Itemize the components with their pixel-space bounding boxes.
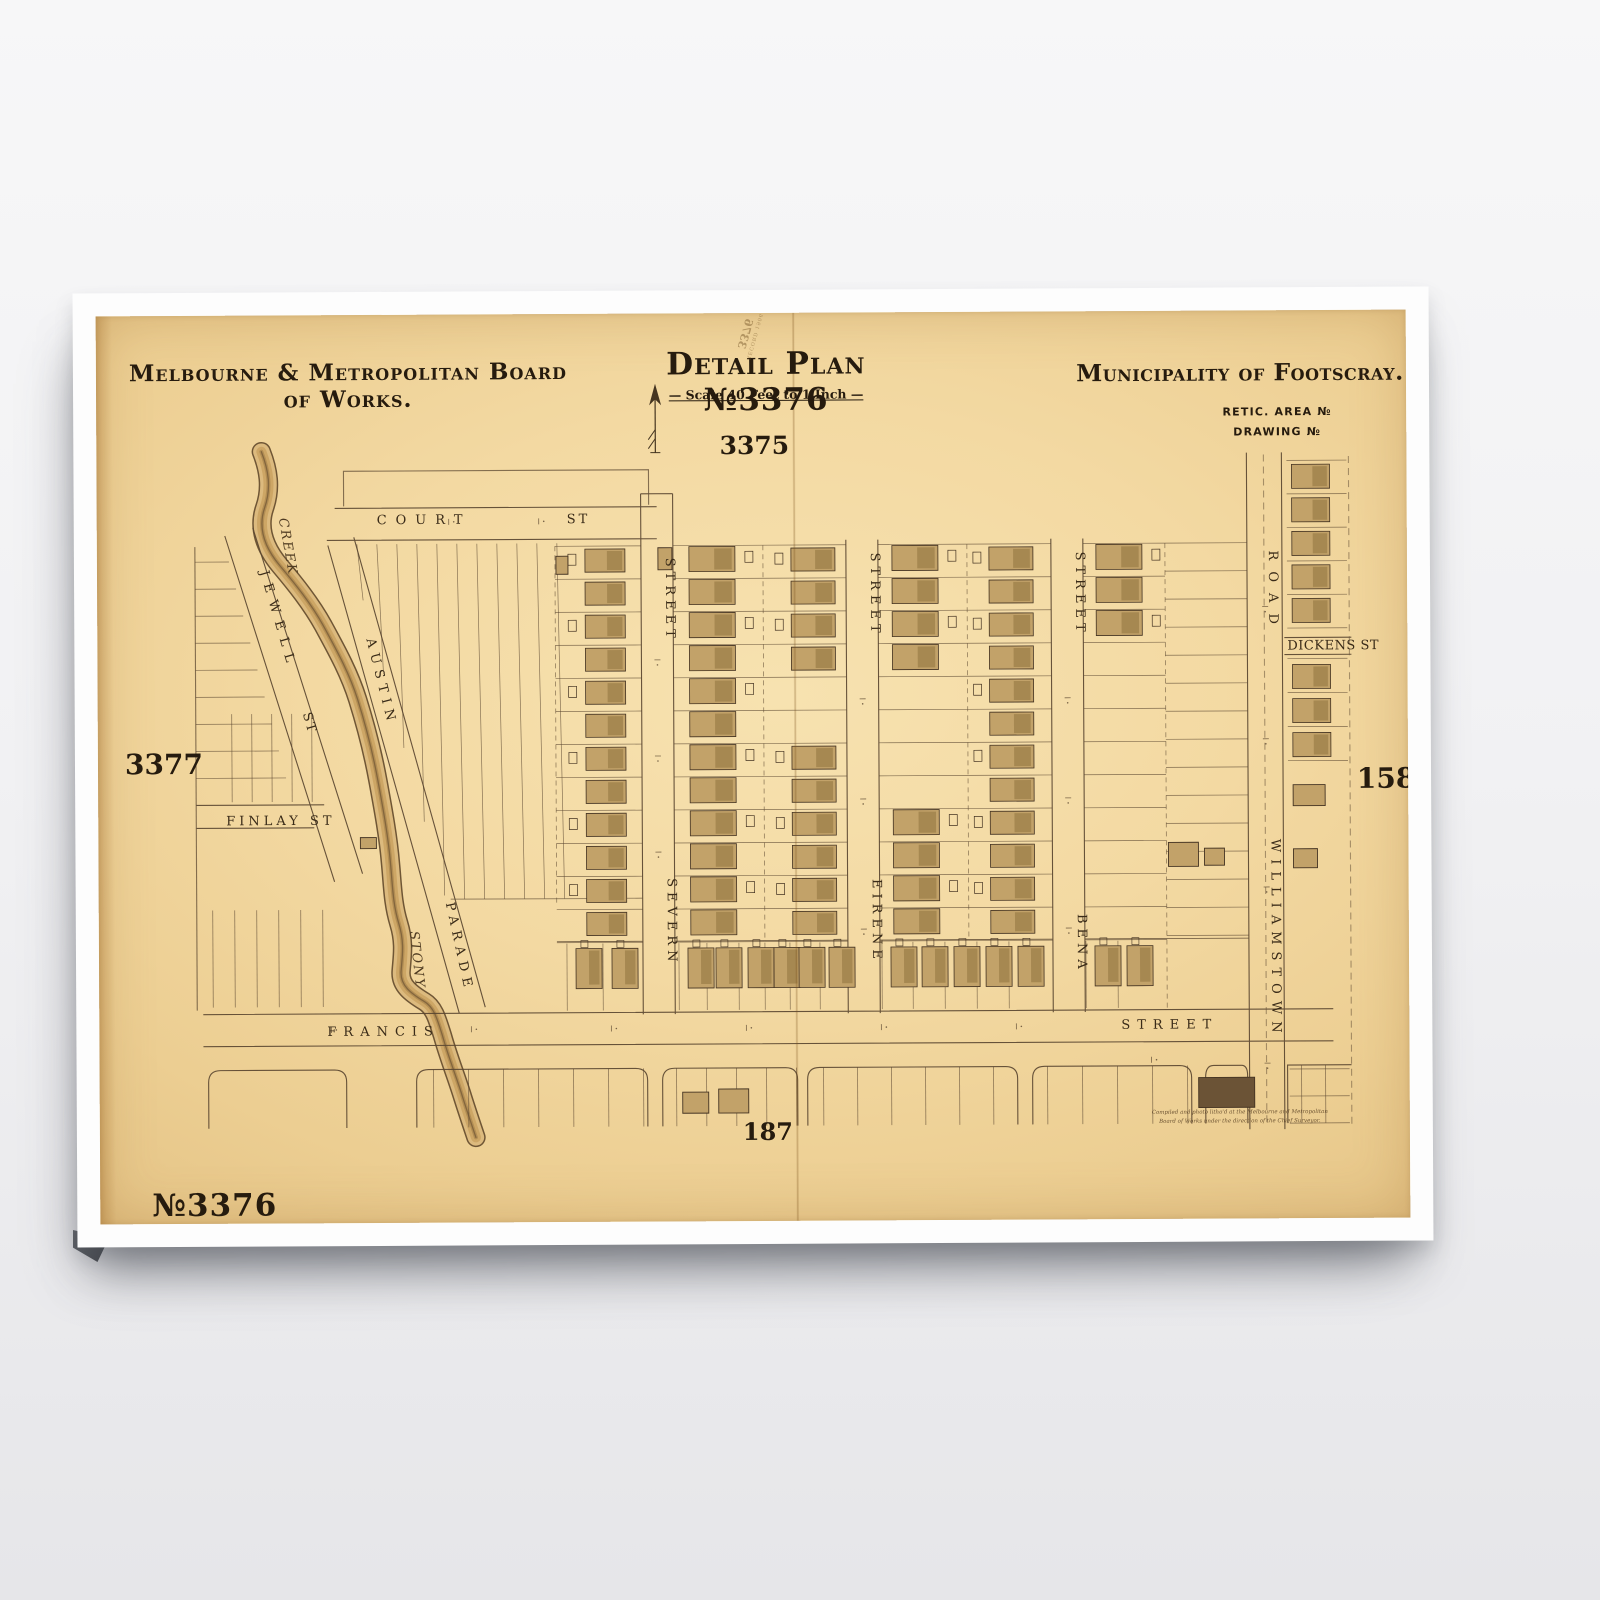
street-label-eirene-street: STREET — [867, 553, 882, 638]
adjoining-plate-left: 3377 — [116, 748, 212, 782]
imprint-note: Compiled and photo litho'd at the Melbou… — [1120, 1108, 1360, 1128]
adjoining-plate-right: 158 — [1336, 761, 1410, 795]
plan-title: Detail Plan №3376 — [611, 345, 921, 419]
street-label-jewell-st: ST — [299, 711, 319, 736]
adjoining-plate-bottom: 187 — [722, 1117, 814, 1146]
street-label-eirene: EIRENE — [869, 879, 884, 964]
street-label-parade: PARADE — [442, 901, 476, 994]
street-label-court-st: ST — [567, 512, 591, 527]
plan-number-stamp: №3376 — [152, 1187, 277, 1224]
map-paper: COURT ST STREET SEVERN STREET EIRENE STR… — [96, 310, 1411, 1225]
publisher-title: Melbourne & Metropolitan Board of Works. — [122, 358, 574, 414]
street-label-williamstown: WILLIAMSTOWN — [1267, 839, 1283, 1040]
product-photo-scene: COURT ST STREET SEVERN STREET EIRENE STR… — [0, 0, 1600, 1600]
south-block-4 — [808, 1066, 1018, 1125]
street-label-williamstown-road: ROAD — [1265, 551, 1280, 635]
street-label-francis-street: STREET — [1121, 1017, 1218, 1033]
municipality-title: Municipality of Footscray. — [1044, 357, 1410, 387]
map-poster: COURT ST STREET SEVERN STREET EIRENE STR… — [73, 286, 1434, 1247]
street-label-dickens: DICKENS ST — [1287, 638, 1379, 653]
scale-note: — Scale 40 Feet to 1 Inch — — [611, 386, 921, 403]
street-label-severn-street: STREET — [662, 558, 677, 643]
street-label-court: COURT — [377, 513, 472, 529]
drawing-no-label: DRAWING № — [1182, 422, 1372, 443]
street-label-bena: BENA — [1074, 914, 1089, 974]
south-block-1 — [209, 1070, 347, 1129]
retic-area-label: RETIC. AREA № — [1182, 402, 1372, 423]
street-label-francis: FRANCIS — [327, 1024, 440, 1040]
imprint-line-2: Board of Works under the direction of th… — [1120, 1117, 1360, 1128]
retic-drawing-block: RETIC. AREA № DRAWING № — [1182, 402, 1372, 443]
street-label-bena-street: STREET — [1072, 552, 1087, 637]
street-label-finlay: FINLAY ST — [226, 814, 335, 830]
street-label-severn: SEVERN — [664, 878, 679, 967]
adjoining-plate-top: 3375 — [708, 431, 800, 460]
court-block-outline — [343, 470, 648, 507]
